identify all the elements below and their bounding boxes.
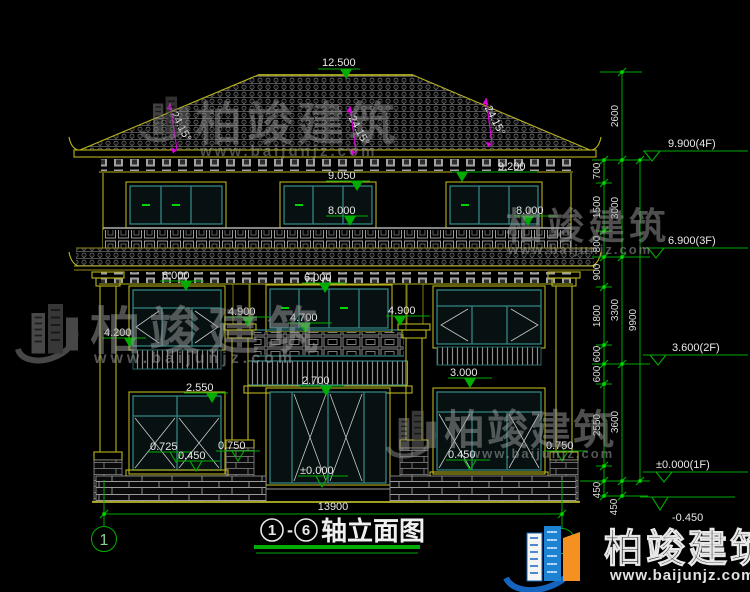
floor-mark-4f: 9.900(4F) [643, 138, 748, 161]
svg-text:±0.000: ±0.000 [300, 465, 334, 477]
svg-text:450: 450 [592, 481, 603, 498]
total-width-label: 13900 [318, 501, 349, 513]
floor-mark-minus450: -0.450 [640, 497, 735, 524]
svg-text:2.550: 2.550 [186, 382, 214, 394]
level-3000: 3.000 [448, 367, 492, 388]
svg-text:www.baijunjz.com: www.baijunjz.com [199, 143, 377, 160]
spandrel-right [437, 347, 541, 365]
floor-mark-2f: 3.600(2F) [643, 342, 748, 365]
svg-text:900: 900 [592, 263, 603, 280]
logo-brand: 柏竣建筑 [604, 528, 750, 571]
svg-text:www.baijunjz.com: www.baijunjz.com [93, 350, 296, 367]
floor-mark-1f: ±0.000(1F) [643, 459, 748, 482]
svg-text:9.900(4F): 9.900(4F) [668, 138, 716, 150]
watermark-right: 柏竣建筑 www.baijunjz.com [506, 205, 670, 257]
svg-text:www.baijunjz.com: www.baijunjz.com [469, 446, 614, 461]
svg-text:9.200: 9.200 [498, 161, 526, 173]
svg-text:3.000: 3.000 [450, 367, 478, 379]
watermark-center: 柏竣建筑 www.baijunjz.com [388, 407, 616, 461]
svg-text:3300: 3300 [610, 298, 621, 321]
svg-text:600: 600 [592, 345, 603, 362]
chain-outer-label: 9900 [628, 308, 639, 331]
svg-text:9.050: 9.050 [328, 170, 356, 182]
svg-text:450: 450 [609, 498, 620, 515]
title-separator: - [287, 520, 293, 540]
svg-text:6.000: 6.000 [304, 272, 332, 284]
title-text: 轴立面图 [321, 516, 425, 546]
svg-text:0.750: 0.750 [218, 440, 246, 452]
svg-text:柏竣建筑: 柏竣建筑 [506, 205, 670, 247]
svg-text:0.725: 0.725 [150, 441, 178, 453]
svg-text:±0.000(1F): ±0.000(1F) [656, 459, 710, 471]
f1-window-left [126, 392, 228, 476]
svg-text:700: 700 [592, 162, 603, 179]
svg-text:1800: 1800 [592, 304, 603, 327]
company-logo: 柏竣建筑 www.baijunjz.com [506, 526, 750, 590]
svg-text:1: 1 [100, 532, 109, 549]
logo-icon [506, 526, 580, 590]
attic-window-left [126, 182, 226, 228]
logo-url: www.baijunjz.com [609, 567, 750, 584]
axis-bubble-left: 1 [92, 527, 117, 552]
svg-text:4.900: 4.900 [388, 305, 416, 317]
svg-text:6.000: 6.000 [162, 270, 190, 282]
watermark-left: 柏竣建筑 www.baijunjz.com [18, 303, 326, 367]
svg-text:8.000: 8.000 [328, 205, 356, 217]
svg-text:600: 600 [592, 365, 603, 382]
svg-text:1: 1 [268, 522, 276, 539]
svg-text:6.900(3F): 6.900(3F) [668, 235, 716, 247]
cad-elevation-drawing: 24.15° 24.15° 24.15° 12.500 9.050 9.200 … [0, 0, 750, 592]
svg-text:12.500: 12.500 [322, 57, 356, 69]
pilaster-right [548, 272, 580, 502]
title-underline-thick [254, 545, 420, 549]
svg-text:0.450: 0.450 [178, 450, 206, 462]
svg-text:6: 6 [302, 522, 310, 539]
floor-level-marks: 9.900(4F) 6.900(3F) 3.600(2F) ±0.000(1F)… [640, 138, 748, 524]
svg-text:-0.450: -0.450 [672, 512, 703, 524]
drawing-title: 1 - 6 轴立面图 [254, 516, 425, 553]
svg-text:3.600(2F): 3.600(2F) [672, 342, 720, 354]
svg-text:2600: 2600 [610, 104, 621, 127]
elevation-canvas: 24.15° 24.15° 24.15° 12.500 9.050 9.200 … [0, 0, 750, 592]
svg-text:2.700: 2.700 [302, 375, 330, 387]
f2-window-right [433, 286, 545, 348]
svg-text:www.baijunjz.com: www.baijunjz.com [507, 242, 652, 257]
